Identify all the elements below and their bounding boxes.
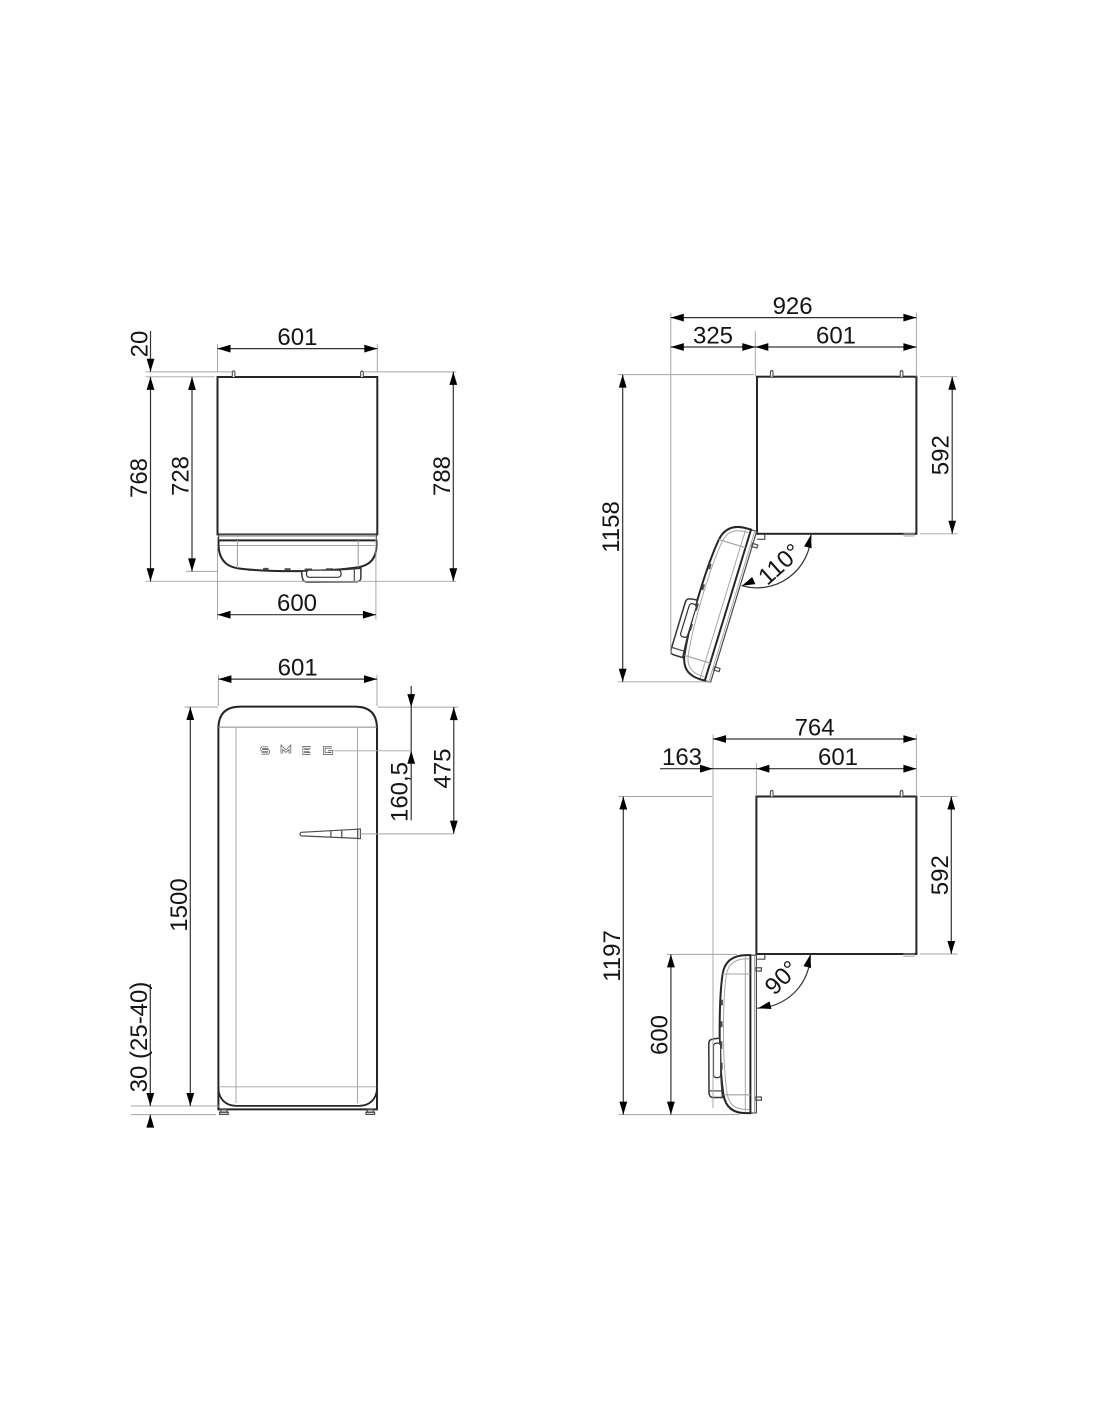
svg-text:163: 163 <box>662 744 702 771</box>
svg-text:600: 600 <box>277 590 317 617</box>
svg-text:764: 764 <box>795 714 835 741</box>
svg-text:30 (25-40): 30 (25-40) <box>126 982 153 1093</box>
svg-text:325: 325 <box>693 322 733 349</box>
svg-text:1500: 1500 <box>166 878 193 931</box>
svg-text:601: 601 <box>818 744 858 771</box>
svg-text:601: 601 <box>278 655 318 682</box>
svg-text:160,5: 160,5 <box>387 762 414 822</box>
svg-text:926: 926 <box>773 293 813 320</box>
svg-text:601: 601 <box>277 324 317 351</box>
svg-text:788: 788 <box>429 456 456 496</box>
svg-text:728: 728 <box>168 456 195 496</box>
svg-text:475: 475 <box>429 748 456 788</box>
svg-text:592: 592 <box>928 435 955 475</box>
svg-text:1158: 1158 <box>598 501 625 553</box>
svg-text:592: 592 <box>927 855 954 895</box>
svg-text:1197: 1197 <box>599 930 626 982</box>
svg-text:768: 768 <box>126 458 153 498</box>
svg-text:601: 601 <box>816 322 856 349</box>
svg-text:20: 20 <box>127 331 154 358</box>
svg-text:600: 600 <box>646 1015 673 1055</box>
